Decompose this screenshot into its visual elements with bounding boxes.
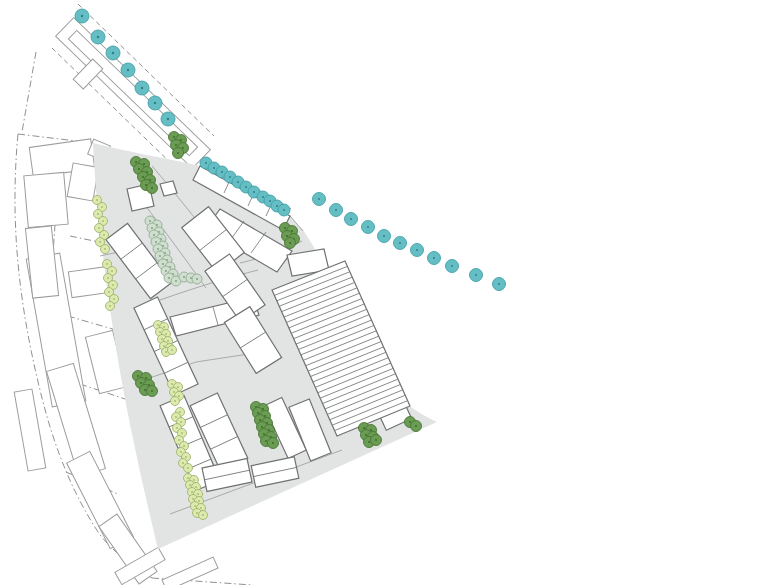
avenue-tree-teal-center-dot xyxy=(383,235,385,237)
site-tree-light-green-center-dot xyxy=(157,324,159,326)
street-tree-teal-center-dot xyxy=(154,102,156,104)
site-tree-dark-green-center-dot xyxy=(143,163,145,165)
site-tree-dark-green-center-dot xyxy=(415,425,417,427)
avenue-tree-teal-center-dot xyxy=(498,283,500,285)
site-tree-dark-green-center-dot xyxy=(182,147,184,149)
building-edge-tree-teal-center-dot xyxy=(276,205,278,207)
site-tree-light-green-center-dot xyxy=(182,462,184,464)
street-tree-teal-center-dot xyxy=(141,87,143,89)
site-tree-dark-green-center-dot xyxy=(140,382,142,384)
site-tree-light-green-center-dot xyxy=(99,241,101,243)
avenue-tree-teal-center-dot xyxy=(451,265,453,267)
context-building xyxy=(25,226,58,298)
site-tree-light-green-center-dot xyxy=(111,270,113,272)
site-tree-light-green-center-dot xyxy=(183,445,185,447)
site-tree-light-green-center-dot xyxy=(177,386,179,388)
site-tree-light-green-center-dot xyxy=(109,305,111,307)
site-tree-dark-green-center-dot xyxy=(259,419,261,421)
site-tree-dark-green-center-dot xyxy=(138,168,140,170)
context-building xyxy=(14,389,46,471)
site-tree-light-green-center-dot xyxy=(187,467,189,469)
site-tree-light-green-center-dot xyxy=(163,326,165,328)
site-tree-light-green-center-dot xyxy=(103,234,105,236)
building-edge-tree-teal-center-dot xyxy=(213,167,215,169)
site-tree-dark-green-center-dot xyxy=(286,235,288,237)
building-edge-tree-teal-center-dot xyxy=(269,200,271,202)
site-tree-sage-center-dot xyxy=(165,270,167,272)
site-tree-dark-green-center-dot xyxy=(284,227,286,229)
site-tree-light-green-center-dot xyxy=(178,395,180,397)
site-tree-dark-green-center-dot xyxy=(175,144,177,146)
site-tree-light-green-center-dot xyxy=(195,486,197,488)
context-building xyxy=(67,163,99,201)
building-edge-tree-teal-center-dot xyxy=(237,181,239,183)
context-building xyxy=(162,557,218,585)
site-tree-light-green-center-dot xyxy=(104,248,106,250)
site-tree-light-green-center-dot xyxy=(200,507,202,509)
building-edge-tree-teal-center-dot xyxy=(205,162,207,164)
site-plan-page xyxy=(0,0,780,585)
site-tree-dark-green-center-dot xyxy=(363,427,365,429)
site-tree-light-green-center-dot xyxy=(108,291,110,293)
site-tree-dark-green-center-dot xyxy=(368,441,370,443)
site-tree-light-green-center-dot xyxy=(161,338,163,340)
site-tree-sage-center-dot xyxy=(151,227,153,229)
building-edge-tree-teal-center-dot xyxy=(283,209,285,211)
site-tree-dark-green-center-dot xyxy=(151,390,153,392)
site-tree-sage-center-dot xyxy=(183,276,185,278)
site-tree-light-green-center-dot xyxy=(196,512,198,514)
site-tree-dark-green-center-dot xyxy=(144,389,146,391)
site-tree-light-green-center-dot xyxy=(197,493,199,495)
site-tree-light-green-center-dot xyxy=(173,391,175,393)
site-tree-sage-center-dot xyxy=(157,248,159,250)
building-edge-tree-teal-center-dot xyxy=(245,186,247,188)
site-tree-sage-center-dot xyxy=(153,234,155,236)
site-tree-light-green-center-dot xyxy=(106,263,108,265)
site-tree-light-green-center-dot xyxy=(179,411,181,413)
site-plan-drawing xyxy=(0,0,780,585)
street-tree-teal-center-dot xyxy=(97,36,99,38)
site-tree-light-green-center-dot xyxy=(180,451,182,453)
site-tree-light-green-center-dot xyxy=(193,479,195,481)
site-tree-sage-center-dot xyxy=(196,278,198,280)
site-tree-dark-green-center-dot xyxy=(370,429,372,431)
site-tree-light-green-center-dot xyxy=(113,298,115,300)
street-tree-teal-center-dot xyxy=(112,52,114,54)
site-tree-light-green-center-dot xyxy=(202,514,204,516)
site-tree-sage-center-dot xyxy=(149,220,151,222)
context-building xyxy=(24,172,68,227)
site-tree-light-green-center-dot xyxy=(159,331,161,333)
site-tree-light-green-center-dot xyxy=(180,421,182,423)
site-tree-light-green-center-dot xyxy=(181,432,183,434)
site-tree-dark-green-center-dot xyxy=(409,421,411,423)
site-tree-light-green-center-dot xyxy=(167,340,169,342)
street-tree-teal-center-dot xyxy=(167,118,169,120)
site-tree-dark-green-center-dot xyxy=(375,439,377,441)
site-tree-light-green-center-dot xyxy=(198,500,200,502)
building-edge-tree-teal-center-dot xyxy=(262,196,264,198)
site-tree-light-green-center-dot xyxy=(98,227,100,229)
site-tree-light-green-center-dot xyxy=(192,498,194,500)
site-tree-dark-green-center-dot xyxy=(177,152,179,154)
site-tree-light-green-center-dot xyxy=(112,284,114,286)
site-tree-light-green-center-dot xyxy=(163,345,165,347)
site-tree-light-green-center-dot xyxy=(97,213,99,215)
avenue-tree-teal-center-dot xyxy=(335,209,337,211)
site-tree-sage-center-dot xyxy=(175,280,177,282)
site-tree-light-green-center-dot xyxy=(189,484,191,486)
building-edge-tree-teal-center-dot xyxy=(253,191,255,193)
site-tree-light-green-center-dot xyxy=(171,349,173,351)
site-tree-light-green-center-dot xyxy=(174,400,176,402)
site-tree-light-green-center-dot xyxy=(165,351,167,353)
site-tree-light-green-center-dot xyxy=(187,477,189,479)
avenue-tree-teal-center-dot xyxy=(399,242,401,244)
site-tree-dark-green-center-dot xyxy=(261,426,263,428)
site-tree-dark-green-center-dot xyxy=(145,377,147,379)
site-tree-sage-center-dot xyxy=(159,255,161,257)
site-tree-dark-green-center-dot xyxy=(180,139,182,141)
building-edge-tree-teal-center-dot xyxy=(229,176,231,178)
site-tree-light-green-center-dot xyxy=(102,220,104,222)
site-tree-light-green-center-dot xyxy=(175,416,177,418)
site-tree-dark-green-center-dot xyxy=(289,242,291,244)
site-tree-sage-center-dot xyxy=(162,263,164,265)
site-tree-dark-green-center-dot xyxy=(263,433,265,435)
site-tree-sage-center-dot xyxy=(155,241,157,243)
avenue-tree-teal-center-dot xyxy=(475,274,477,276)
building-edge-tree-teal-center-dot xyxy=(221,171,223,173)
site-tree-dark-green-center-dot xyxy=(137,375,139,377)
street-tree-teal-center-dot xyxy=(127,69,129,71)
site-tree-light-green-center-dot xyxy=(171,383,173,385)
site-tree-dark-green-center-dot xyxy=(291,230,293,232)
site-tree-dark-green-center-dot xyxy=(142,176,144,178)
site-tree-dark-green-center-dot xyxy=(151,187,153,189)
site-tree-dark-green-center-dot xyxy=(272,442,274,444)
parcel-boundary-dashdot-line xyxy=(22,52,36,132)
site-tree-dark-green-center-dot xyxy=(365,434,367,436)
site-tree-light-green-center-dot xyxy=(194,505,196,507)
street-tree-teal-center-dot xyxy=(81,15,83,17)
site-tree-dark-green-center-dot xyxy=(257,412,259,414)
avenue-tree-teal-center-dot xyxy=(367,226,369,228)
avenue-tree-teal-center-dot xyxy=(350,218,352,220)
site-tree-light-green-center-dot xyxy=(191,491,193,493)
site-tree-light-green-center-dot xyxy=(96,199,98,201)
site-tree-dark-green-center-dot xyxy=(135,161,137,163)
site-tree-light-green-center-dot xyxy=(165,333,167,335)
site-tree-light-green-center-dot xyxy=(178,439,180,441)
site-tree-light-green-center-dot xyxy=(185,456,187,458)
avenue-tree-teal-center-dot xyxy=(433,257,435,259)
site-tree-light-green-center-dot xyxy=(101,206,103,208)
site-tree-dark-green-center-dot xyxy=(265,440,267,442)
site-tree-light-green-center-dot xyxy=(176,427,178,429)
site-tree-sage-center-dot xyxy=(168,277,170,279)
avenue-tree-teal-center-dot xyxy=(416,249,418,251)
site-tree-dark-green-center-dot xyxy=(173,136,175,138)
site-tree-light-green-center-dot xyxy=(107,277,109,279)
avenue-tree-teal-center-dot xyxy=(318,198,320,200)
